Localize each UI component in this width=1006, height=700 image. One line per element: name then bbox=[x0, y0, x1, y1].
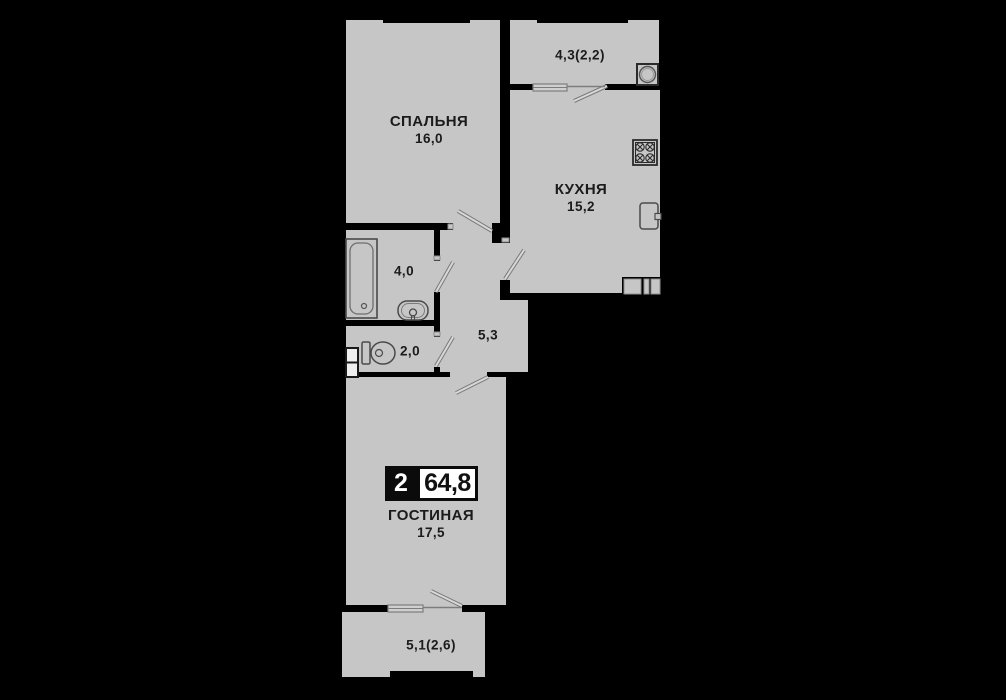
room-area: 4,0 bbox=[394, 263, 414, 278]
room-label-kitchen: КУХНЯ 15,2 bbox=[555, 182, 607, 214]
room-kitchen-floor-right bbox=[622, 90, 660, 277]
room-toilet-floor bbox=[346, 326, 434, 372]
room-area: 16,0 bbox=[390, 131, 468, 146]
wall bbox=[500, 293, 562, 300]
wall bbox=[462, 605, 506, 612]
wall bbox=[487, 372, 528, 376]
vent-shaft-icon bbox=[624, 279, 660, 294]
wall bbox=[500, 84, 533, 90]
living-door-gap bbox=[450, 372, 487, 377]
wall bbox=[434, 292, 440, 337]
window-notch bbox=[390, 671, 473, 678]
room-name: ГОСТИНАЯ bbox=[388, 508, 474, 525]
room-area: 15,2 bbox=[555, 199, 607, 214]
room-label-bathroom: 4,0 bbox=[394, 263, 414, 278]
room-area: 4,3(2,2) bbox=[555, 47, 605, 62]
room-area: 5,3 bbox=[478, 327, 498, 342]
duct-box-icon bbox=[346, 348, 358, 377]
room-area: 17,5 bbox=[388, 525, 474, 540]
room-area: 2,0 bbox=[400, 343, 420, 358]
wall bbox=[340, 320, 440, 326]
room-name: СПАЛЬНЯ bbox=[390, 114, 468, 131]
wall bbox=[500, 20, 510, 243]
floor-plan-image: СПАЛЬНЯ 16,0 КУХНЯ 15,2 ГОСТИНАЯ 17,5 4,… bbox=[0, 0, 1006, 700]
room-label-balcony-bottom: 5,1(2,6) bbox=[406, 637, 456, 652]
room-label-living-room: ГОСТИНАЯ 17,5 bbox=[388, 508, 474, 540]
floor-plan-drawing bbox=[0, 0, 1006, 700]
room-label-balcony-top: 4,3(2,2) bbox=[555, 47, 605, 62]
room-hallway-floor bbox=[440, 230, 502, 372]
wall bbox=[342, 605, 388, 612]
room-name: КУХНЯ bbox=[555, 182, 607, 199]
washing-machine-icon bbox=[637, 64, 658, 85]
room-area: 5,1(2,6) bbox=[406, 637, 456, 652]
total-area-badge: 64,8 bbox=[417, 466, 478, 501]
room-label-toilet: 2,0 bbox=[400, 343, 420, 358]
window-notch bbox=[537, 15, 628, 23]
rooms-count-badge: 2 bbox=[385, 466, 417, 501]
room-label-hallway: 5,3 bbox=[478, 327, 498, 342]
room-label-bedroom: СПАЛЬНЯ 16,0 bbox=[390, 114, 468, 146]
window-notch bbox=[383, 15, 470, 23]
room-hallway-floor-lobe bbox=[502, 300, 528, 373]
apartment-summary-badge: 2 64,8 bbox=[385, 466, 478, 501]
